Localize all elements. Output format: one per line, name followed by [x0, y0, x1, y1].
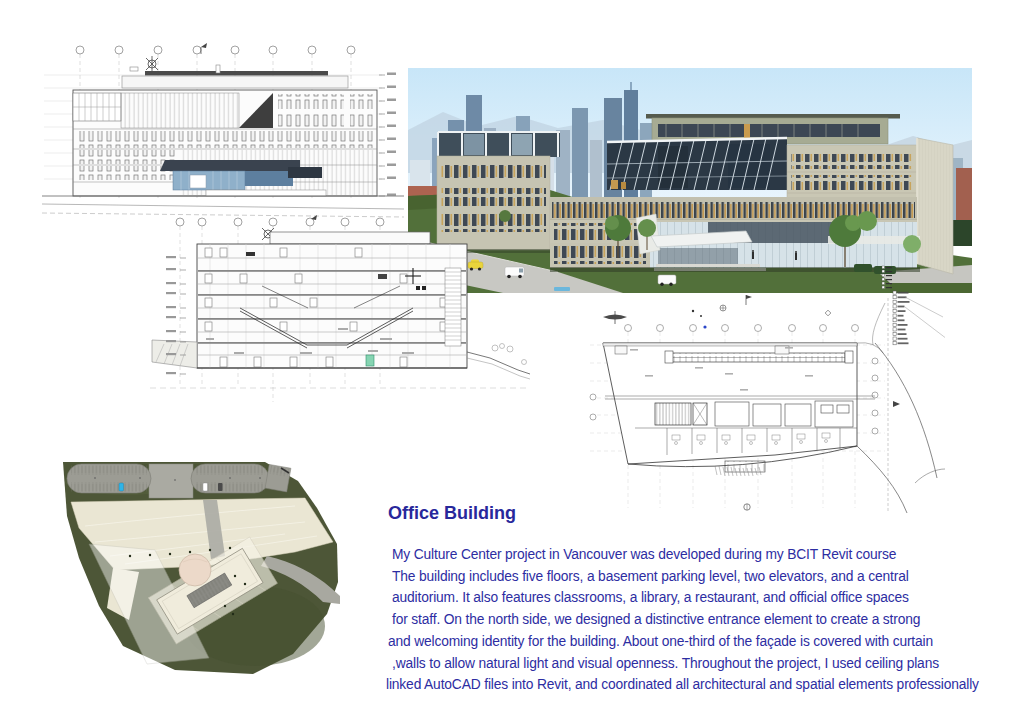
entrance-band [160, 160, 300, 171]
description-line: My Culture Center project in Vancouver w… [386, 544, 972, 566]
ladder-shaft [445, 268, 461, 346]
description-line: linked AutoCAD files into Revit, and coo… [386, 674, 972, 696]
elevation-graphic [42, 38, 404, 228]
elevation-drawing [42, 38, 404, 228]
description-line: for staff. On the north side, we designe… [386, 609, 972, 631]
white-car [203, 483, 208, 491]
blue-dot-marker [703, 325, 706, 328]
parking-lot [67, 464, 291, 498]
project-description: Office Building My Culture Center projec… [386, 503, 972, 696]
level-markers [379, 73, 396, 197]
section-graphic [150, 212, 530, 402]
floor-plan-drawing [575, 283, 945, 518]
blue-car [119, 483, 124, 491]
grid-bubbles [76, 46, 355, 54]
description-line: ,walls to allow natural light and visual… [386, 653, 972, 675]
stair-core [655, 403, 691, 425]
site-plan-graphic [55, 456, 340, 678]
page-title: Office Building [388, 503, 972, 524]
floor-plan-graphic [575, 283, 945, 518]
section-drawing [150, 212, 530, 402]
room-legend [893, 291, 910, 345]
portfolio-page: Office Building My Culture Center projec… [0, 0, 1024, 724]
description-line: auditorium. It also features classrooms,… [386, 587, 972, 609]
green-door [366, 355, 374, 366]
description-line: The building includes five floors, a bas… [386, 566, 972, 588]
dark-car [218, 483, 223, 491]
amber-door [744, 124, 750, 139]
description-line: and welcoming identity for the building.… [386, 631, 972, 653]
grid-bubbles [176, 218, 384, 226]
north-marker-icon [146, 56, 158, 72]
flag-marker-icon [201, 43, 207, 48]
site-plan-drawing [55, 456, 340, 678]
section-body [197, 244, 467, 368]
